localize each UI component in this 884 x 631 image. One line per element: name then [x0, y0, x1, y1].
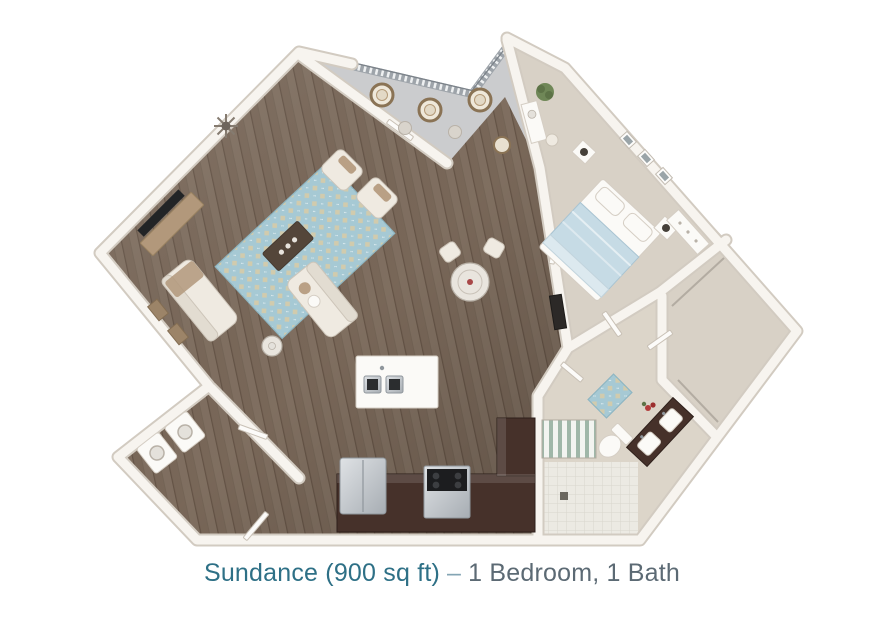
floor-plan-caption: Sundance (900 sq ft)–1 Bedroom, 1 Bath [0, 557, 884, 589]
hanging-chair-1 [371, 84, 393, 106]
caption-plan-name: Sundance (900 sq ft) [204, 559, 440, 587]
range [424, 466, 470, 518]
balcony-seat-cushion [494, 137, 510, 153]
balcony-table-1 [399, 122, 412, 135]
dining-table [451, 263, 489, 301]
island-faucet [380, 366, 384, 370]
caption-details: 1 Bedroom, 1 Bath [468, 559, 680, 587]
refrigerator [340, 458, 386, 514]
balcony-table-2 [449, 126, 462, 139]
floor-plan-3d-rendering [0, 0, 884, 631]
floor-plan-figure: Sundance (900 sq ft)–1 Bedroom, 1 Bath [0, 0, 884, 631]
hanging-chair-2 [419, 99, 441, 121]
starburst-mirror [214, 114, 238, 138]
kitchen-island [356, 356, 438, 408]
bathroom-tile-floor [540, 462, 638, 536]
bedroom-plant [536, 83, 554, 101]
shower-drain [560, 492, 568, 500]
round-side-table [262, 336, 282, 356]
vanity-stool [546, 134, 558, 146]
hanging-chair-3 [469, 89, 491, 111]
caption-separator: – [447, 559, 461, 587]
